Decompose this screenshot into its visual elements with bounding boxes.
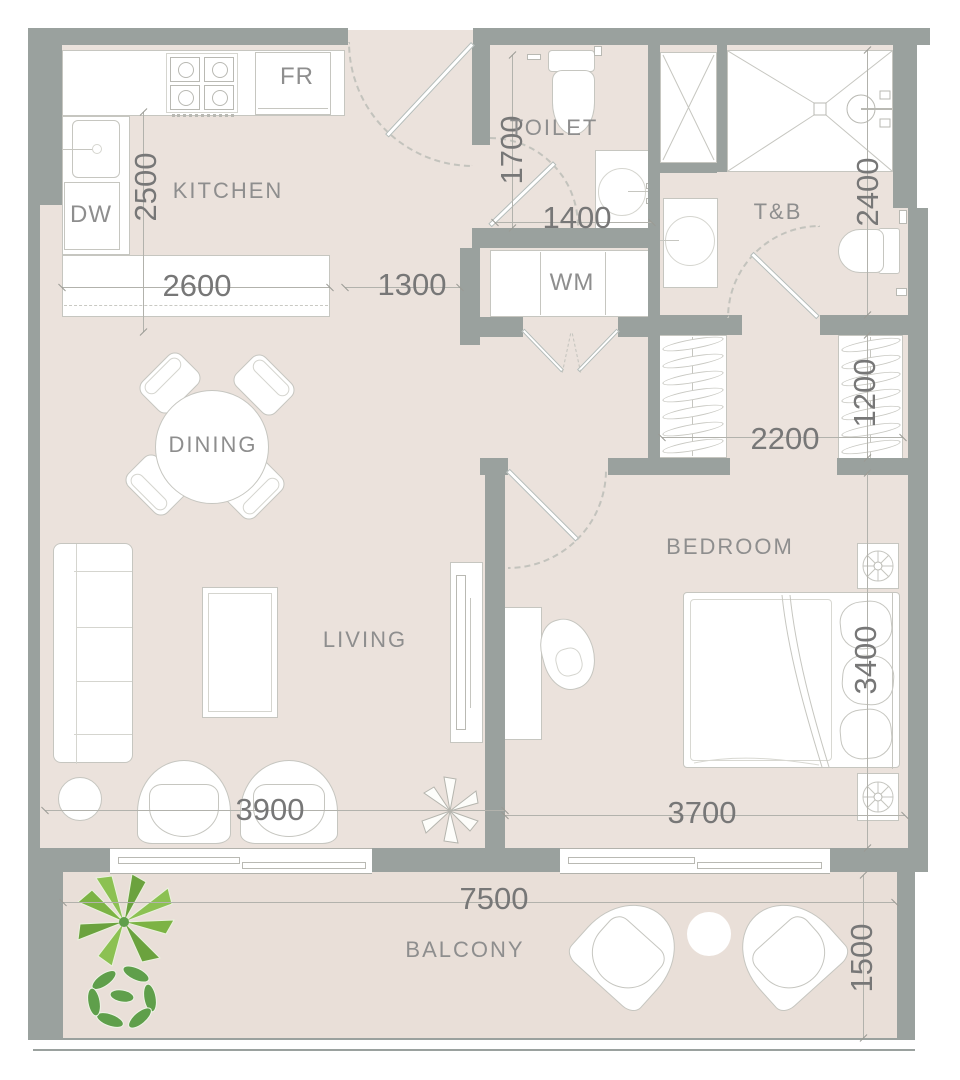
dim-living-width: 3900 (236, 792, 305, 828)
fridge-handle (258, 108, 328, 109)
washer-closet-divider (540, 252, 541, 315)
nightstand (857, 773, 899, 821)
wall-top-left (28, 28, 348, 45)
side-table (58, 777, 102, 821)
sliding-panel (242, 862, 366, 869)
tb-wall-fixture (896, 288, 907, 296)
tv-console (450, 562, 483, 743)
wall-bedroom-north-mid (608, 458, 730, 475)
headboard (892, 593, 899, 769)
sofa-armrest (74, 734, 132, 762)
kitchen-label: KITCHEN (173, 178, 284, 204)
dim-bedroom-length: 3400 (848, 626, 884, 695)
wall-balcony-right (897, 872, 915, 1038)
island-overhang-line (64, 305, 328, 306)
balcony-label: BALCONY (405, 937, 524, 963)
wall-tb-south-left (660, 315, 742, 335)
sofa-cushion-line (76, 627, 132, 628)
bedroom-label: BEDROOM (666, 534, 794, 560)
sliding-panel (118, 857, 240, 864)
dim-closet-depth: 1200 (847, 359, 883, 428)
lamp-icon (858, 774, 898, 820)
floor-plan: FR DW WM (0, 0, 960, 1080)
nightstand (857, 543, 899, 589)
stove-burner-icon (204, 85, 234, 110)
lamp-icon (858, 544, 898, 588)
sliding-door-living (110, 848, 372, 874)
tb-shower-area (727, 50, 893, 172)
tb-wall-fixture (899, 210, 907, 224)
wall-top-right (473, 28, 930, 45)
wall-right-mid (908, 208, 928, 872)
coffee-table-inner (208, 593, 272, 712)
sliding-panel (697, 862, 822, 869)
dim-balcony-width: 7500 (460, 881, 529, 917)
kitchen-faucet-knob (92, 144, 102, 154)
wall-closet-south-left (480, 317, 523, 337)
coffee-table (202, 587, 278, 718)
leafy-plant-icon (84, 960, 162, 1032)
living-plant-icon (418, 773, 482, 845)
toilet-paper-holder-icon (527, 54, 541, 60)
dim-toilet-width: 1400 (543, 200, 612, 236)
wall-bottom-right (830, 848, 928, 872)
stove-burner-icon (170, 57, 200, 82)
wall-left-kitchen (40, 38, 62, 205)
shower-stall-cross-icon (661, 53, 716, 162)
dining-label: DINING (169, 432, 258, 458)
dim-kitchen-depth: 2500 (128, 153, 164, 222)
dim-line-kitchen-depth (143, 112, 144, 332)
armchair (137, 760, 231, 844)
tb-label: T&B (754, 199, 803, 225)
wall-toilet-west (472, 45, 490, 145)
washer-closet-divider (605, 252, 606, 315)
sliding-panel (568, 857, 695, 864)
balcony-railing (33, 1038, 915, 1051)
toilet-sink-faucet (628, 191, 650, 192)
wall-foyer-hall (460, 248, 480, 345)
toilet-flush-icon (594, 46, 602, 56)
shower-stall (660, 52, 717, 163)
tv-screen (456, 575, 466, 730)
balcony-table (687, 912, 731, 956)
tb-toilet-bowl (838, 229, 884, 273)
sofa (53, 543, 133, 763)
fridge-label: FR (280, 63, 314, 91)
dim-closet-width: 2200 (751, 421, 820, 457)
dim-island-length: 2600 (163, 268, 232, 304)
stove-burner-icon (204, 57, 234, 82)
stove-burner-icon (170, 85, 200, 110)
wall-stall-south (660, 163, 717, 173)
wall-right-top (893, 45, 917, 208)
dim-entry-passage: 1300 (378, 267, 447, 303)
living-label: LIVING (323, 627, 407, 653)
tv-bracket (470, 598, 471, 708)
wall-bedroom-north-right (837, 458, 908, 475)
toilet-label: TOILET (510, 115, 599, 141)
wall-hall-spine (648, 45, 660, 460)
dim-bedroom-width: 3700 (668, 795, 737, 831)
wall-bottom-mid (372, 848, 560, 872)
wall-bottom-left (28, 848, 110, 872)
dishwasher-label: DW (70, 201, 112, 229)
sofa-armrest (74, 544, 132, 572)
stove-knobs (172, 114, 234, 117)
dim-balcony-depth: 1500 (844, 924, 880, 993)
palm-plant-icon (72, 872, 176, 968)
sofa-back (54, 544, 77, 764)
wall-living-bedroom-divider (485, 458, 505, 848)
toilet-tank (548, 50, 595, 72)
dim-tb-length: 2400 (850, 158, 886, 227)
wall-left-balcony (40, 868, 63, 1038)
wall-stall-east (717, 45, 727, 172)
sliding-door-bedroom (560, 848, 830, 874)
sofa-cushion-line (76, 681, 132, 682)
wall-left (28, 45, 40, 1040)
tb-sink-basin (665, 216, 715, 266)
washer-label: WM (550, 269, 595, 297)
